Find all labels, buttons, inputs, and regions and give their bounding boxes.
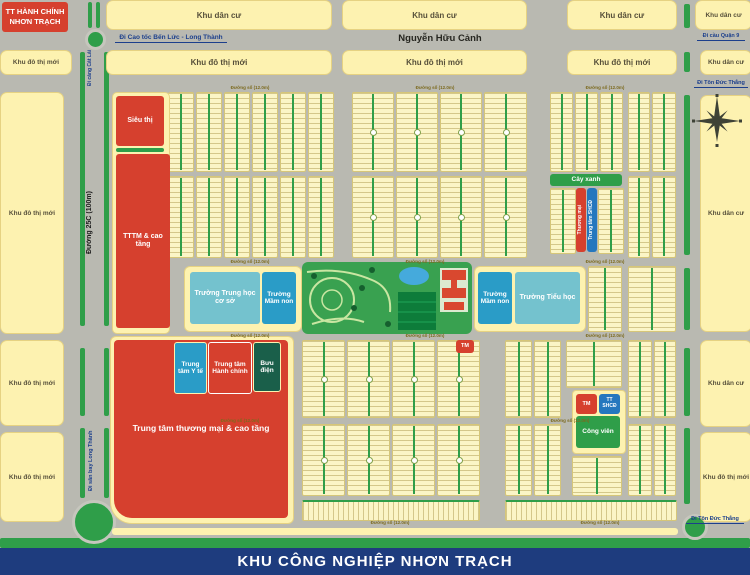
road-median bbox=[684, 348, 690, 416]
commercial-tm-block: TM bbox=[456, 340, 474, 353]
housing-block bbox=[392, 340, 435, 418]
housing-block bbox=[600, 92, 623, 172]
housing-block bbox=[505, 500, 677, 521]
road-median bbox=[80, 52, 85, 326]
mall-highrise-block: TTTM & cao tầng bbox=[116, 154, 170, 328]
zone-label: Khu đô thị mới bbox=[9, 474, 55, 481]
road-median bbox=[684, 52, 690, 72]
housing-block bbox=[392, 424, 435, 496]
housing-block bbox=[224, 176, 250, 258]
housing-block bbox=[280, 92, 306, 172]
primary-school-block: Trường Tiểu học bbox=[515, 272, 580, 324]
housing-block bbox=[654, 340, 676, 418]
community-center-block: TT SHCĐ bbox=[599, 394, 620, 414]
road-median bbox=[684, 428, 690, 504]
supermarket-label: Siêu thị bbox=[127, 117, 152, 125]
zone-khu-do-thi-moi: Khu đô thị mới bbox=[342, 50, 527, 75]
admin-center-title-box: TT HÀNH CHÍNH NHƠN TRẠCH bbox=[2, 2, 68, 32]
road-label-ton-duc-thang: Đi Tôn Đức Thắng bbox=[686, 516, 744, 524]
compass-icon bbox=[690, 94, 744, 148]
housing-block bbox=[628, 266, 676, 332]
post-office-block: Bưu điện bbox=[253, 342, 281, 392]
kindergarten-block: Trường Mầm non bbox=[478, 272, 512, 324]
zone-khu-dan-cu: Khu dân cư bbox=[567, 0, 677, 30]
housing-block bbox=[505, 340, 532, 418]
street-label: Đường số (12.0m) bbox=[390, 85, 480, 90]
road-label-cang-cat-lai: Đi cảng Cát Lái bbox=[87, 52, 93, 86]
zone-label: Khu đô thị mới bbox=[191, 58, 248, 67]
housing-block bbox=[196, 92, 222, 172]
housing-block bbox=[654, 424, 676, 496]
zone-khu-dan-cu: Khu dân cư bbox=[342, 0, 527, 30]
commercial-tm-block: TM bbox=[576, 394, 597, 414]
zone-khu-do-thi-moi: Khu đô thị mới bbox=[0, 50, 72, 75]
road-label-san-bay-long-thanh: Đi sân bay Long Thành bbox=[88, 426, 94, 496]
housing-block bbox=[505, 424, 532, 496]
zone-label: Khu đô thị mới bbox=[9, 380, 55, 387]
housing-block bbox=[588, 266, 622, 332]
park-label: Công viên bbox=[582, 428, 613, 435]
tt-shcd-label: TT SHCĐ bbox=[601, 398, 619, 410]
housing-block bbox=[168, 92, 194, 172]
road-median bbox=[88, 2, 92, 28]
housing-block bbox=[575, 92, 598, 172]
post-office-label: Bưu điện bbox=[255, 360, 279, 375]
admin-title-line1: TT HÀNH CHÍNH bbox=[6, 7, 65, 17]
zone-label: Khu dân cư bbox=[708, 59, 744, 66]
zone-label: Khu đô thị mới bbox=[703, 474, 749, 481]
street-label: Đường số (12.0m) bbox=[540, 520, 660, 525]
zone-khu-dan-cu: Khu dân cư bbox=[700, 50, 750, 75]
zone-khu-do-thi-moi: Khu đô thị mới bbox=[0, 340, 64, 426]
housing-block bbox=[628, 176, 650, 258]
green-divider bbox=[116, 148, 164, 152]
mall-highrise-label: TTTM & cao tầng bbox=[119, 233, 167, 249]
housing-block bbox=[566, 340, 622, 388]
zone-khu-do-thi-moi: Khu đô thị mới bbox=[106, 50, 332, 75]
housing-block bbox=[224, 92, 250, 172]
zone-label: Khu dân cư bbox=[708, 380, 744, 387]
central-park bbox=[302, 262, 472, 334]
zone-khu-do-thi-moi: Khu đô thị mới bbox=[0, 432, 64, 522]
community-center-label: Trung tâm SHCĐ bbox=[589, 200, 595, 240]
zone-khu-dan-cu: Khu dân cư bbox=[700, 340, 750, 427]
community-center-strip: Trung tâm SHCĐ bbox=[587, 188, 597, 252]
road-label-duong-25c: Đường 25C (100m) bbox=[86, 192, 93, 254]
road-label-nguyen-huu-canh: Nguyễn Hữu Cảnh bbox=[385, 33, 495, 44]
housing-block bbox=[628, 424, 652, 496]
housing-block bbox=[484, 176, 527, 258]
housing-block bbox=[302, 340, 345, 418]
secondary-school-block: Trường Trung học cơ sở bbox=[190, 272, 260, 324]
medical-center-label: Trung tâm Y tế bbox=[177, 361, 205, 376]
road-median bbox=[80, 348, 85, 416]
housing-block bbox=[652, 176, 676, 258]
commercial-center-label: Trung tâm thương mại & cao tầng bbox=[126, 424, 276, 434]
greenery-bar: Cây xanh bbox=[550, 174, 622, 186]
housing-block bbox=[572, 456, 622, 496]
street-label: Đường số (12.0m) bbox=[560, 85, 650, 90]
supermarket-block: Siêu thị bbox=[116, 96, 164, 146]
road-label-cao-toc: Đi Cao tốc Bến Lức - Long Thành bbox=[115, 34, 227, 43]
housing-block bbox=[302, 500, 480, 521]
zone-label: Khu đô thị mới bbox=[594, 58, 651, 67]
housing-block bbox=[440, 92, 482, 172]
zone-label: Khu đô thị mới bbox=[9, 210, 55, 217]
housing-block bbox=[352, 92, 394, 172]
kindergarten-label: Trường Mầm non bbox=[264, 291, 294, 306]
medical-center-block: Trung tâm Y tế bbox=[174, 342, 207, 394]
zone-label: Khu dân cư bbox=[412, 11, 456, 20]
housing-block bbox=[484, 92, 527, 172]
kindergarten-block: Trường Mầm non bbox=[262, 272, 296, 324]
street-label: Đường số (12.0m) bbox=[190, 418, 290, 423]
commercial-strip-vertical: Thương mại bbox=[576, 188, 586, 252]
street-label: Đường số (12.0m) bbox=[330, 520, 450, 525]
roundabout bbox=[72, 500, 116, 544]
housing-block bbox=[347, 340, 390, 418]
admin-title-line2: NHƠN TRẠCH bbox=[10, 17, 61, 27]
industrial-zone-banner: KHU CÔNG NGHIỆP NHƠN TRẠCH bbox=[0, 548, 750, 575]
housing-block bbox=[628, 340, 652, 418]
street-label: Đường số (12.0m) bbox=[520, 418, 620, 423]
street-label: Đường số (12.0m) bbox=[560, 259, 650, 264]
road-median bbox=[684, 268, 690, 330]
housing-block bbox=[628, 92, 650, 172]
housing-block bbox=[280, 176, 306, 258]
zone-label: Khu đô thị mới bbox=[406, 58, 463, 67]
master-plan-map: Khu dân cư Khu dân cư Khu dân cư Khu dân… bbox=[0, 0, 750, 575]
housing-block bbox=[396, 92, 438, 172]
zone-khu-do-thi-moi: Khu đô thị mới bbox=[567, 50, 677, 75]
street-label: Đường số (12.0m) bbox=[205, 259, 295, 264]
roundabout bbox=[85, 29, 106, 50]
street-label: Đường số (12.0m) bbox=[205, 85, 295, 90]
road-median bbox=[104, 428, 109, 498]
housing-block bbox=[302, 424, 345, 496]
commercial-strip-label: Thương mại bbox=[578, 205, 584, 234]
road-median bbox=[80, 428, 85, 498]
housing-block bbox=[168, 176, 194, 258]
road-median bbox=[684, 4, 690, 28]
street-label: Đường số (12.0m) bbox=[380, 333, 470, 338]
zone-label: Khu dân cư bbox=[197, 11, 241, 20]
zone-khu-do-thi-moi: Khu đô thị mới bbox=[700, 432, 750, 522]
admin-center-block: Trung tâm Hành chính bbox=[208, 342, 252, 394]
housing-block bbox=[347, 424, 390, 496]
housing-block bbox=[252, 92, 278, 172]
road-median-bottom bbox=[0, 538, 750, 548]
housing-block bbox=[534, 340, 561, 418]
housing-block bbox=[352, 176, 394, 258]
street-label: Đường số (12.0m) bbox=[205, 333, 295, 338]
zone-khu-dan-cu: Khu dân cư bbox=[695, 0, 750, 30]
housing-block bbox=[396, 176, 438, 258]
secondary-school-label: Trường Trung học cơ sở bbox=[193, 290, 257, 306]
banner-label: KHU CÔNG NGHIỆP NHƠN TRẠCH bbox=[237, 553, 512, 570]
tm-label: TM bbox=[583, 401, 591, 407]
housing-block bbox=[598, 188, 624, 254]
primary-school-label: Trường Tiểu học bbox=[519, 294, 577, 302]
zone-khu-dan-cu: Khu dân cư bbox=[106, 0, 332, 30]
admin-center-label: Trung tâm Hành chính bbox=[211, 361, 249, 376]
tm-label: TM bbox=[461, 343, 469, 349]
housing-block bbox=[308, 176, 334, 258]
street-label: Đường số (12.0m) bbox=[560, 333, 650, 338]
zone-khu-do-thi-moi: Khu đô thị mới bbox=[0, 92, 64, 334]
road-label-ton-duc-thang: Đi Tôn Đức Thắng bbox=[694, 80, 748, 88]
housing-block bbox=[308, 92, 334, 172]
housing-block bbox=[534, 424, 561, 496]
housing-block bbox=[252, 176, 278, 258]
housing-block bbox=[550, 188, 576, 254]
zone-label: Khu dân cư bbox=[705, 12, 741, 19]
kindergarten-label: Trường Mầm non bbox=[480, 291, 510, 306]
road-median bbox=[96, 2, 100, 28]
zone-label: Khu dân cư bbox=[708, 210, 744, 217]
street-label: Đường số (12.0m) bbox=[380, 259, 470, 264]
road-label-cau-quan-9: Đi cầu Quận 9 bbox=[697, 33, 745, 41]
housing-block bbox=[196, 176, 222, 258]
housing-block bbox=[652, 92, 676, 172]
road-median bbox=[104, 52, 109, 326]
housing-block bbox=[440, 176, 482, 258]
zone-label: Khu đô thị mới bbox=[13, 59, 59, 66]
sidewalk-strip bbox=[112, 528, 678, 535]
greenery-label: Cây xanh bbox=[572, 176, 601, 183]
housing-block bbox=[550, 92, 573, 172]
road-median bbox=[104, 348, 109, 416]
zone-label: Khu dân cư bbox=[600, 11, 644, 20]
housing-block bbox=[437, 424, 480, 496]
